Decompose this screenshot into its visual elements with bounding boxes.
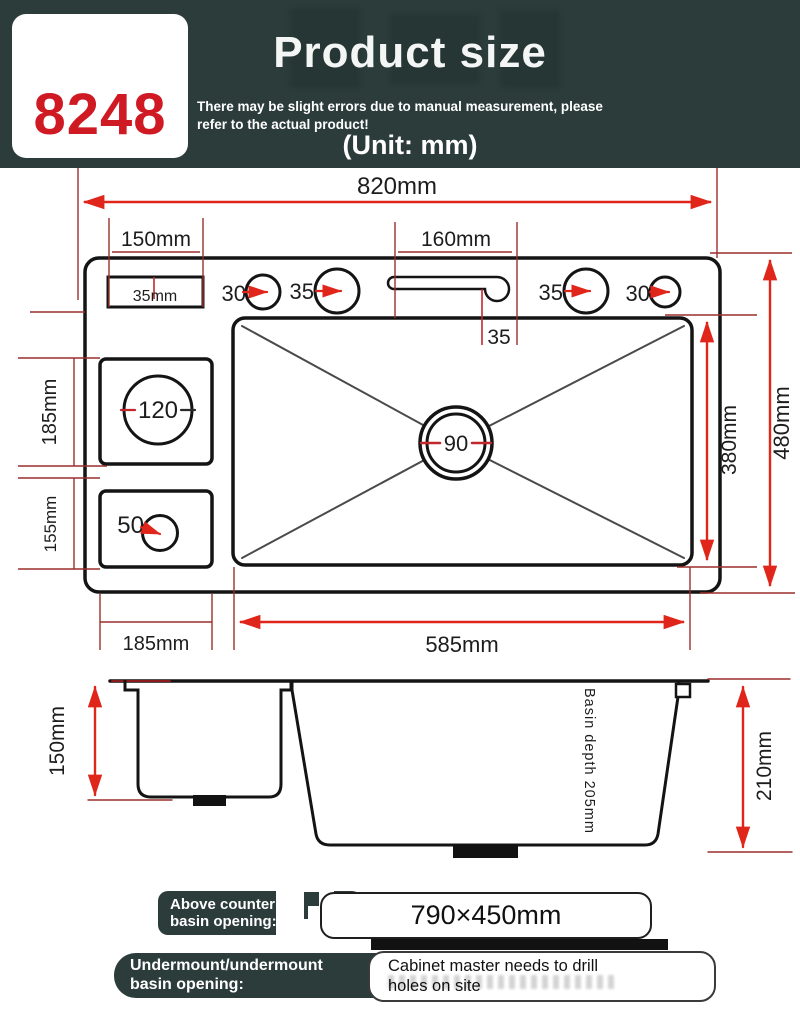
right-basin-profile <box>292 681 679 845</box>
undermount-line1: Undermount/undermount <box>130 957 398 975</box>
hole-label: 30 <box>626 281 650 306</box>
overflow-rect-label: 35mm <box>133 288 177 305</box>
left-span-label: 150mm <box>121 228 191 251</box>
undermount-value-box: Cabinet master needs to drill holes on s… <box>368 951 716 1002</box>
basin-width-label: 585mm <box>425 632 498 657</box>
basin-depth-label: Basin depth 205mm <box>581 688 597 834</box>
top-view: 90 30 35 35 30 120 50 <box>85 258 720 592</box>
above-counter-value: 790×450mm <box>411 900 562 931</box>
bottom-left-label: 185mm <box>123 633 190 655</box>
sink-dimension-diagram: 90 30 35 35 30 120 50 <box>0 0 800 1024</box>
hole-label: 30 <box>222 281 246 306</box>
right-drain-stub <box>453 845 518 858</box>
left-upper-label: 185mm <box>39 379 61 446</box>
undermount-label-pill: Undermount/undermount basin opening: <box>114 953 398 998</box>
total-height-label: 480mm <box>769 386 794 459</box>
left-drain-stub <box>193 795 226 806</box>
left-lower-label: 155mm <box>41 496 60 553</box>
side-view: 150mm 210mm Basin depth 205mm <box>46 679 792 858</box>
watermark-bar <box>371 939 668 950</box>
undermount-line2: basin opening: <box>130 976 398 994</box>
drain-diameter-label: 90 <box>444 431 468 456</box>
right-depth-label: 210mm <box>753 731 776 801</box>
left-depth-label: 150mm <box>46 706 69 776</box>
hole-label: 35 <box>290 279 314 304</box>
slot-offset-label: 35 <box>487 326 510 349</box>
above-counter-value-box: 790×450mm <box>320 892 652 939</box>
side-extension-lines <box>88 679 792 852</box>
undermount-value-line1: Cabinet master needs to drill <box>388 957 714 977</box>
basin-height-label: 380mm <box>718 405 741 475</box>
left-basin-profile <box>125 681 291 797</box>
soap-hole-label: 50 <box>117 512 144 539</box>
hole-label: 35 <box>539 280 563 305</box>
side-dimension-arrows <box>95 687 743 847</box>
overall-width-label: 820mm <box>357 173 437 200</box>
cup-holder-label: 120 <box>138 397 178 424</box>
mounting-clip <box>676 684 690 697</box>
undermount-value-line2: holes on site <box>388 977 714 997</box>
slot-width-label: 160mm <box>421 228 491 251</box>
